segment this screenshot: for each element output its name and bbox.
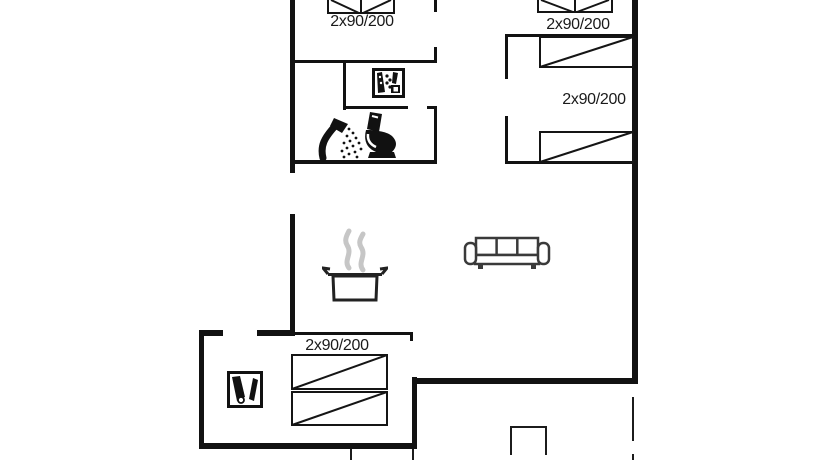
wall-living-bottom xyxy=(412,378,638,384)
sofa-icon xyxy=(463,235,551,273)
wall-bunkroom-left xyxy=(199,330,204,449)
wall-bunkroom-right xyxy=(412,377,417,449)
terrace-step-top xyxy=(510,426,547,428)
terrace-line-right-lower xyxy=(632,454,634,460)
dishwasher-icon xyxy=(372,68,405,98)
bunk-bed-icon xyxy=(291,391,389,427)
wall-rightbedroom-left-up xyxy=(505,34,508,79)
bunk-bed-icon xyxy=(291,354,389,391)
wall-bunkroom-top-thin xyxy=(293,332,413,335)
wall-utility-inner-stub xyxy=(427,106,437,109)
double-bed-foot-icon xyxy=(536,0,614,15)
wall-rightbedroom-left-lo xyxy=(505,116,508,164)
wall-bathroom-top xyxy=(290,60,437,63)
wall-exterior-left-upper xyxy=(290,0,295,173)
wall-utility-inner-vert xyxy=(343,60,346,110)
single-bed-icon xyxy=(539,131,635,164)
terrace-step-left xyxy=(510,426,512,455)
toilet-icon xyxy=(358,110,402,162)
terrace-line-bottom-b xyxy=(412,449,414,460)
wall-hall-left-stub-top xyxy=(434,0,437,12)
sauna-icon xyxy=(227,371,263,409)
bed-size-label: 2x90/200 xyxy=(556,92,632,108)
floor-plan: 2x90/200 2x90/200 2x90/200 2x90/200 xyxy=(0,0,834,460)
bed-size-label: 2x90/200 xyxy=(541,17,615,33)
wall-utility-inner-horiz xyxy=(343,106,408,109)
wall-bunkroom-bottom xyxy=(199,443,417,449)
wall-bunkroom-top-right xyxy=(257,330,295,336)
wall-bunkroom-top-stub xyxy=(410,332,413,341)
bed-size-label: 2x90/200 xyxy=(300,338,374,354)
single-bed-icon xyxy=(539,36,635,69)
bed-size-label: 2x90/200 xyxy=(325,14,399,30)
terrace-line-right-upper xyxy=(632,397,634,441)
wall-utility-right xyxy=(434,106,437,164)
terrace-step-right xyxy=(545,426,547,455)
wall-exterior-left-lower xyxy=(290,214,295,335)
cooking-pot-icon xyxy=(322,228,388,304)
wall-hall-left-stub-mid xyxy=(434,47,437,63)
terrace-line-bottom-a xyxy=(350,449,352,460)
